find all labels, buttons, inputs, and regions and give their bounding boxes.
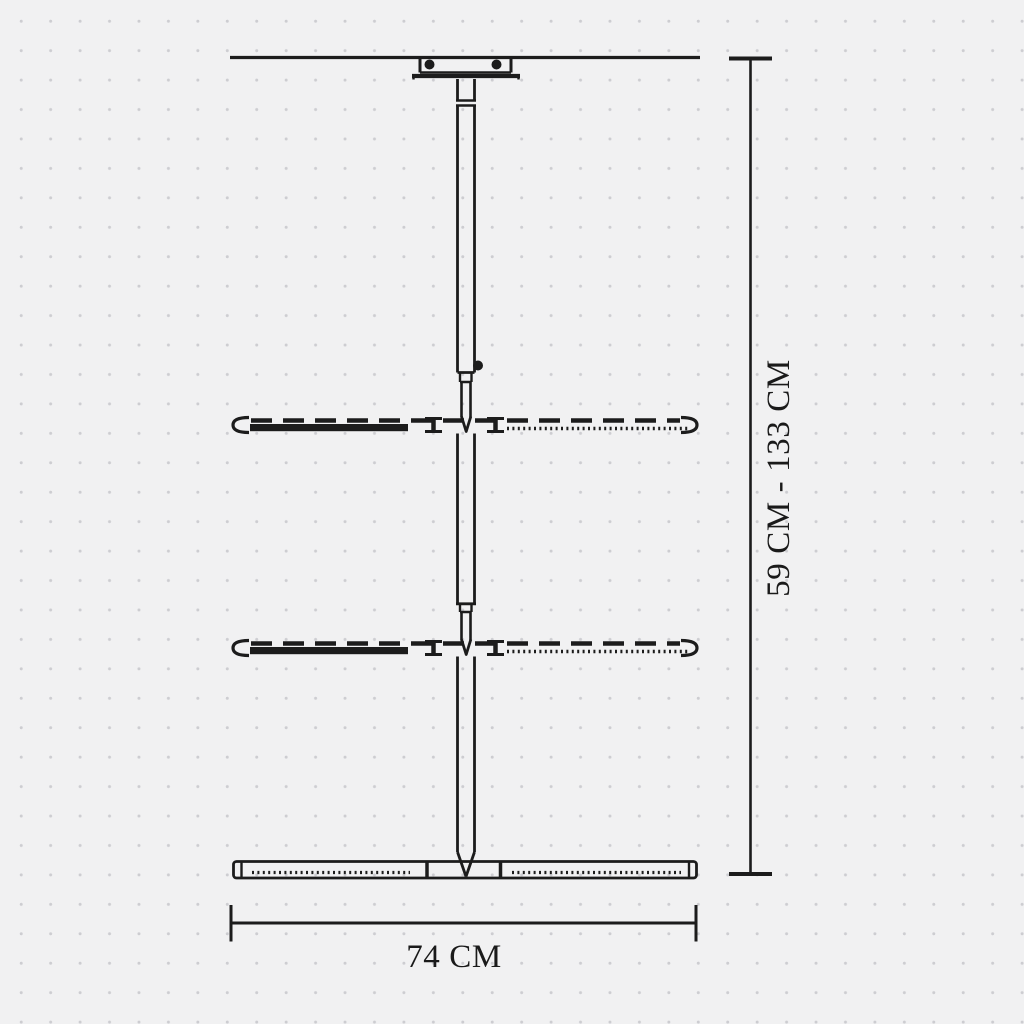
- inner-rod-1: [462, 382, 471, 417]
- height-adjustment-knob-icon: [473, 361, 483, 371]
- inner-rod-2: [462, 612, 471, 640]
- dimension-diagram: 59 CM - 133 CM 74 CM: [0, 0, 1024, 1024]
- ceiling-mount: [412, 59, 520, 80]
- pole-bottom-arrow-tip: [458, 852, 475, 877]
- pole-top-joint: [456, 101, 476, 106]
- drawing-canvas: 59 CM - 133 CM 74 CM: [0, 0, 1024, 1024]
- pole-lower-tube: [458, 657, 475, 853]
- pole-upper-tube: [458, 106, 475, 373]
- width-dimension-label: 74 CM: [406, 939, 502, 975]
- height-dimension-label: 59 CM - 133 CM: [761, 359, 797, 597]
- pole-top-stub: [458, 79, 475, 100]
- pole-middle-tube: [458, 434, 475, 603]
- hanging-bar-upper: [233, 417, 697, 433]
- telescopic-pole: [456, 79, 483, 877]
- width-dimension: 74 CM: [231, 905, 696, 975]
- mounting-screw-right-icon: [492, 60, 502, 70]
- height-dimension: 59 CM - 133 CM: [729, 58, 797, 875]
- hanging-bar-lower: [233, 640, 697, 656]
- drawing-root: 59 CM - 133 CM 74 CM: [230, 58, 797, 976]
- telescope-collar-1: [460, 373, 472, 383]
- mounting-screw-left-icon: [425, 60, 435, 70]
